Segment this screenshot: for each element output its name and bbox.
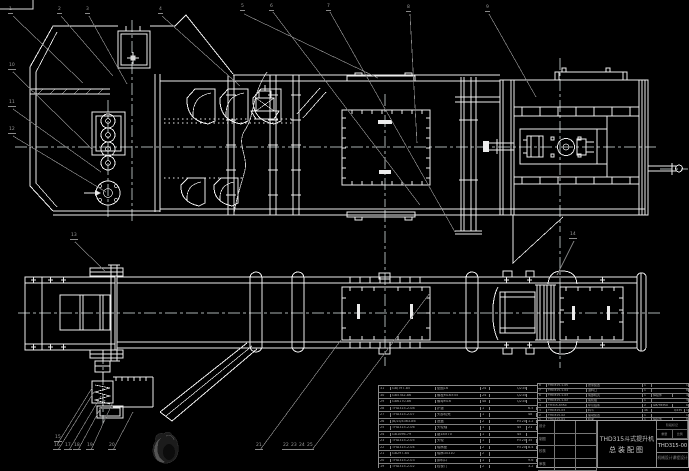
door-handle-slot xyxy=(379,170,391,174)
bom-cell: TH315-8350 xyxy=(547,404,587,407)
signature-blank xyxy=(555,446,576,458)
bom-cell: 2 xyxy=(481,452,490,455)
tension-spring xyxy=(95,385,110,404)
bom-cell: 1.2 xyxy=(527,420,537,423)
cad-drawing-sheet: 1234567891011121314151617181920212223242… xyxy=(0,0,689,468)
bom-cell: 20 xyxy=(379,459,391,462)
bom-cell: THD315-2-08 xyxy=(391,407,436,410)
bom-cell: 5 xyxy=(538,399,547,402)
bom-cell: HT200 xyxy=(516,420,527,423)
item-balloon: 11 xyxy=(8,101,16,107)
bom-cell: 9.6 xyxy=(527,459,537,462)
signature-label: 设计 xyxy=(538,421,555,433)
bom-cell: 31 xyxy=(379,387,391,390)
bom-cell: 6.5 xyxy=(527,407,537,410)
signature-row: 校核 xyxy=(538,446,597,459)
item-balloon: 23 xyxy=(290,444,298,450)
bom-cell: 1 xyxy=(643,414,652,417)
scale-label: 比例 xyxy=(673,430,689,438)
bom-cell: GB/T8350 xyxy=(652,404,673,407)
item-balloon: 13 xyxy=(70,234,78,240)
bom-cell: 键18×70 xyxy=(436,433,481,436)
door-handle-slot xyxy=(378,120,392,124)
bom-cell: THD315-02 xyxy=(547,414,587,417)
item-balloon: 4 xyxy=(158,8,163,14)
item-balloon: 17 xyxy=(64,444,72,450)
bom-cell: 28 xyxy=(379,407,391,410)
item-balloon: 6 xyxy=(269,5,274,11)
bom-cell: THD315-2-03 xyxy=(391,459,436,462)
bom-table-right-body: 8THD315-1-05张紧装置1127THD315-1-04进料口18.56T… xyxy=(538,384,689,420)
bom-cell: 26 xyxy=(379,420,391,423)
bom-cell: JB/ZQ4363-86 xyxy=(391,420,436,423)
drawing-number: THD315-00 xyxy=(657,440,688,453)
item-balloon: 14 xyxy=(569,233,577,239)
bom-cell: 21 xyxy=(527,426,537,429)
drawing-title-cell: THD315斗式提升机 总装配图 xyxy=(598,421,657,467)
chain-bolt-detail xyxy=(251,85,279,119)
bom-cell: GB1096-79 xyxy=(391,433,436,436)
bom-cell: 3 xyxy=(538,409,547,412)
bom-cell: 1 xyxy=(643,384,652,387)
bom-cell: 21 xyxy=(379,452,391,455)
bom-cell: 30 xyxy=(379,394,391,397)
item-balloon: 2 xyxy=(57,8,62,14)
weight-label: 重量 xyxy=(657,430,673,438)
flange-ring xyxy=(466,272,478,352)
bom-cell: 螺母M16 xyxy=(436,400,481,403)
bom-cell: 24 xyxy=(379,433,391,436)
takeup-frame xyxy=(523,136,543,157)
bom-cell: 焊接件 xyxy=(652,394,673,397)
end-flange xyxy=(637,273,646,351)
bom-cell: 张紧装置 xyxy=(587,384,643,387)
bom-row: 19THD315-2-02检视门23.2 xyxy=(379,464,537,468)
bom-cell: 48 xyxy=(527,413,537,416)
bom-table-right: 8THD315-1-05张紧装置1127THD315-1-04进料口18.56T… xyxy=(537,383,689,420)
bom-cell: 1 xyxy=(481,459,490,462)
bom-cell: 2 xyxy=(481,446,490,449)
bom-cell: 8.4 xyxy=(527,446,537,449)
scale-weight-grid: 阶段标记 重量 比例 xyxy=(657,421,688,440)
bom-cell: 头部机壳 xyxy=(436,413,481,416)
item-balloon: 1 xyxy=(8,8,13,14)
bolted-cover-plate xyxy=(560,287,623,340)
bom-cell: 料斗 xyxy=(587,409,643,412)
bom-cell: 牵引链条 xyxy=(587,404,643,407)
bom-cell: 驱动装置 xyxy=(587,414,643,417)
bom-cell: 1 xyxy=(643,399,652,402)
bom-cell: HT200 xyxy=(516,446,527,449)
bom-cell: 1 xyxy=(643,389,652,392)
bom-cell: 24 xyxy=(481,394,490,397)
bom-cell: 透盖 xyxy=(436,420,481,423)
item-balloon: 22 xyxy=(282,444,290,450)
bom-cell: GB5782-86 xyxy=(391,394,436,397)
ink-smudge xyxy=(153,432,178,463)
item-balloon: 25 xyxy=(306,444,314,450)
bom-cell: 12 xyxy=(685,384,689,387)
bom-cell: 2 xyxy=(538,414,547,417)
flange-ring xyxy=(292,272,304,352)
item-balloon: 12 xyxy=(8,128,16,134)
bom-cell: 29 xyxy=(379,400,391,403)
bom-cell: THD315-2-07 xyxy=(391,413,436,416)
casing-curve xyxy=(234,72,267,214)
bom-cell: 2 xyxy=(481,420,490,423)
stage-mark-label: 阶段标记 xyxy=(657,421,688,429)
product-name: THD315斗式提升机 xyxy=(600,434,654,443)
signature-label: 制图 xyxy=(538,434,555,446)
bom-cell: THD315-2-04 xyxy=(391,446,436,449)
bom-cell: GB6170-86 xyxy=(391,400,436,403)
bom-cell: 23 xyxy=(379,439,391,442)
bom-cell: Q235 xyxy=(516,400,527,403)
bom-cell: 2 xyxy=(643,404,652,407)
bucket xyxy=(181,178,205,206)
bucket-chain xyxy=(164,72,326,214)
bom-cell: 1.8 xyxy=(685,409,689,412)
bom-cell: 1 xyxy=(481,407,490,410)
item-balloon: 18 xyxy=(73,444,81,450)
inspection-door-elevation xyxy=(342,73,430,220)
bom-cell: 35 xyxy=(527,439,537,442)
signature-blank xyxy=(555,421,576,433)
bom-cell: 46 xyxy=(643,409,652,412)
bom-cell: 22 xyxy=(379,446,391,449)
signature-blank xyxy=(576,421,597,433)
bom-cell: 45 xyxy=(685,394,689,397)
bom-cell: 护罩 xyxy=(436,407,481,410)
signature-label: 校核 xyxy=(538,446,555,458)
signature-blank xyxy=(576,446,597,458)
item-balloon: 5 xyxy=(240,5,245,11)
bom-cell: 进料口 xyxy=(587,389,643,392)
signature-row: 制图 xyxy=(538,434,597,447)
organization-label: 机械设计课程设计 xyxy=(657,453,688,461)
bom-cell: 45 xyxy=(516,426,527,429)
item-balloon: 19 xyxy=(86,444,94,450)
mini-grid-row: 阶段标记 xyxy=(657,421,688,430)
item-balloon: 16 xyxy=(53,444,61,450)
head-section xyxy=(483,68,682,215)
signature-row: 设计 xyxy=(538,421,597,434)
drawing-number-cell: 阶段标记 重量 比例 THD315-00 机械设计课程设计 xyxy=(657,421,688,467)
bom-cell: 轴承30310 xyxy=(436,452,481,455)
item-balloon: 7 xyxy=(326,5,331,11)
item-balloon: 9 xyxy=(485,6,490,12)
bom-table-left: 31GB/T97-85垫圈1624Q23530GB5782-86螺栓M16×55… xyxy=(378,385,537,468)
bom-cell: 垫圈16 xyxy=(436,387,481,390)
bom-cell: 27 xyxy=(379,413,391,416)
signature-blank xyxy=(576,459,597,471)
bom-cell: 1 xyxy=(643,394,652,397)
bom-cell: 30 xyxy=(685,399,689,402)
bom-cell: 25 xyxy=(379,426,391,429)
item-balloon: 8 xyxy=(406,6,411,12)
bom-cell: THD315-03 xyxy=(547,409,587,412)
bom-cell: 8 xyxy=(538,384,547,387)
bom-cell: 1 xyxy=(481,413,490,416)
bom-cell: 8.5 xyxy=(685,389,689,392)
drawing-type-label: 总装配图 xyxy=(609,445,645,455)
bom-cell: 1 xyxy=(481,439,490,442)
bom-cell: THD315-2-06 xyxy=(391,426,436,429)
bom-cell: 120 xyxy=(685,414,689,417)
signature-label: 审核 xyxy=(538,459,555,471)
bom-cell: Q235 xyxy=(516,394,527,397)
item-balloon: 15 xyxy=(54,436,62,442)
bom-cell: 尾轮组 xyxy=(587,399,643,402)
bom-cell: 48 xyxy=(481,400,490,403)
bom-cell: 头轮 xyxy=(436,439,481,442)
bom-cell: THD315-1-03 xyxy=(547,394,587,397)
bom-cell: 尾部机壳 xyxy=(587,394,643,397)
bom-cell: THD315-2-05 xyxy=(391,439,436,442)
bom-cell: 6 xyxy=(538,394,547,397)
title-block: 设计制图校核审核 THD315斗式提升机 总装配图 阶段标记 重量 比例 THD… xyxy=(537,420,689,468)
bom-cell: 头轮轴 xyxy=(436,426,481,429)
signature-row: 审核 xyxy=(538,459,597,471)
bom-cell: 64 xyxy=(685,404,689,407)
tail-section xyxy=(30,15,233,212)
bom-cell: 1 xyxy=(481,433,490,436)
item-balloon: 21 xyxy=(255,444,263,450)
signature-blank xyxy=(555,434,576,446)
bom-cell: 螺栓M16×55 xyxy=(436,394,481,397)
takeup-screw-left xyxy=(483,139,514,154)
bom-cell: 4 xyxy=(538,404,547,407)
bom-cell: GB/T97-85 xyxy=(391,387,436,390)
top-view-elevation xyxy=(30,15,682,263)
signature-grid: 设计制图校核审核 xyxy=(538,421,598,467)
item-balloon: 3 xyxy=(85,8,90,14)
bom-cell: THD315-1-04 xyxy=(547,389,587,392)
item-balloon: 10 xyxy=(8,64,16,70)
bom-cell: Q235 xyxy=(673,409,685,412)
bom-cell: 1 xyxy=(481,426,490,429)
bom-cell: 45 xyxy=(516,433,527,436)
mini-grid-row: 重量 比例 xyxy=(657,430,688,439)
sheet-border-corner xyxy=(0,0,33,9)
signature-blank xyxy=(555,459,576,471)
bom-cell: 卸料口 xyxy=(436,459,481,462)
feed-chute-plan xyxy=(160,343,257,421)
item-balloon: 24 xyxy=(298,444,306,450)
bom-cell: GB297-84 xyxy=(391,452,436,455)
inlet-chute xyxy=(118,26,150,68)
flange-ring xyxy=(250,272,262,352)
bom-cell: 轴承座 xyxy=(436,446,481,449)
signature-blank xyxy=(576,434,597,446)
bom-cell: THD315-1-02 xyxy=(547,399,587,402)
bom-cell: HT200 xyxy=(516,439,527,442)
bom-cell: 24 xyxy=(481,387,490,390)
bom-cell: THD315-1-05 xyxy=(547,384,587,387)
item-balloon: 20 xyxy=(108,444,116,450)
casing-shell xyxy=(53,75,648,263)
bom-cell: Q235 xyxy=(516,387,527,390)
rib-plates xyxy=(535,285,556,340)
bom-cell: 7 xyxy=(538,389,547,392)
